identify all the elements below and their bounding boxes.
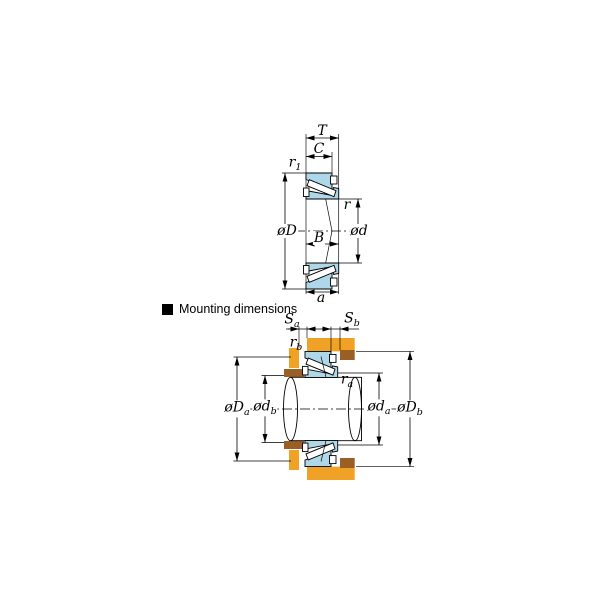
- dim-label-r1: r1: [289, 155, 302, 172]
- catalog-diagram-page: T C r1 øD r ød B a Mounting dimensions S…: [0, 0, 600, 600]
- bearing-upper-half: [304, 173, 339, 199]
- bearing-diagrams-svg: [0, 0, 600, 600]
- mounting-dimensions-heading-text: Mounting dimensions: [179, 302, 297, 316]
- spacer-ring-upper-right: [340, 350, 355, 360]
- spacer-ring-upper-left: [284, 369, 304, 377]
- dim-label-Sa: Sa: [284, 312, 299, 329]
- mounted-bearing-upper-half: [303, 351, 338, 377]
- dim-label-rb: rb: [290, 335, 303, 352]
- dim-label-bore-diameter: ød: [349, 224, 368, 238]
- housing-shoulder-lower: [289, 450, 299, 470]
- dim-label-C: C: [314, 142, 325, 156]
- dim-label-Da: øDa: [223, 400, 250, 417]
- spacer-ring-lower-right: [340, 458, 355, 468]
- mounted-bearing-lower-half: [303, 441, 338, 467]
- dim-label-ra: ra: [341, 372, 353, 389]
- dim-label-Db: øDb: [396, 400, 424, 417]
- spacer-ring-lower-left: [284, 441, 304, 449]
- dim-label-a: a: [317, 291, 325, 305]
- housing-lower-block: [307, 467, 355, 480]
- mounting-dimensions-heading: Mounting dimensions: [162, 302, 297, 316]
- dim-label-da: øda: [366, 399, 391, 416]
- dim-label-B: B: [313, 231, 325, 245]
- dim-label-T: T: [317, 124, 326, 138]
- bearing-lower-half: [304, 263, 339, 289]
- square-bullet-icon: [162, 304, 173, 315]
- dim-label-outer-diameter: øD: [276, 224, 298, 238]
- dim-label-Sb: Sb: [344, 311, 360, 328]
- dim-label-r: r: [344, 198, 351, 212]
- dim-label-db: ødb: [252, 399, 277, 416]
